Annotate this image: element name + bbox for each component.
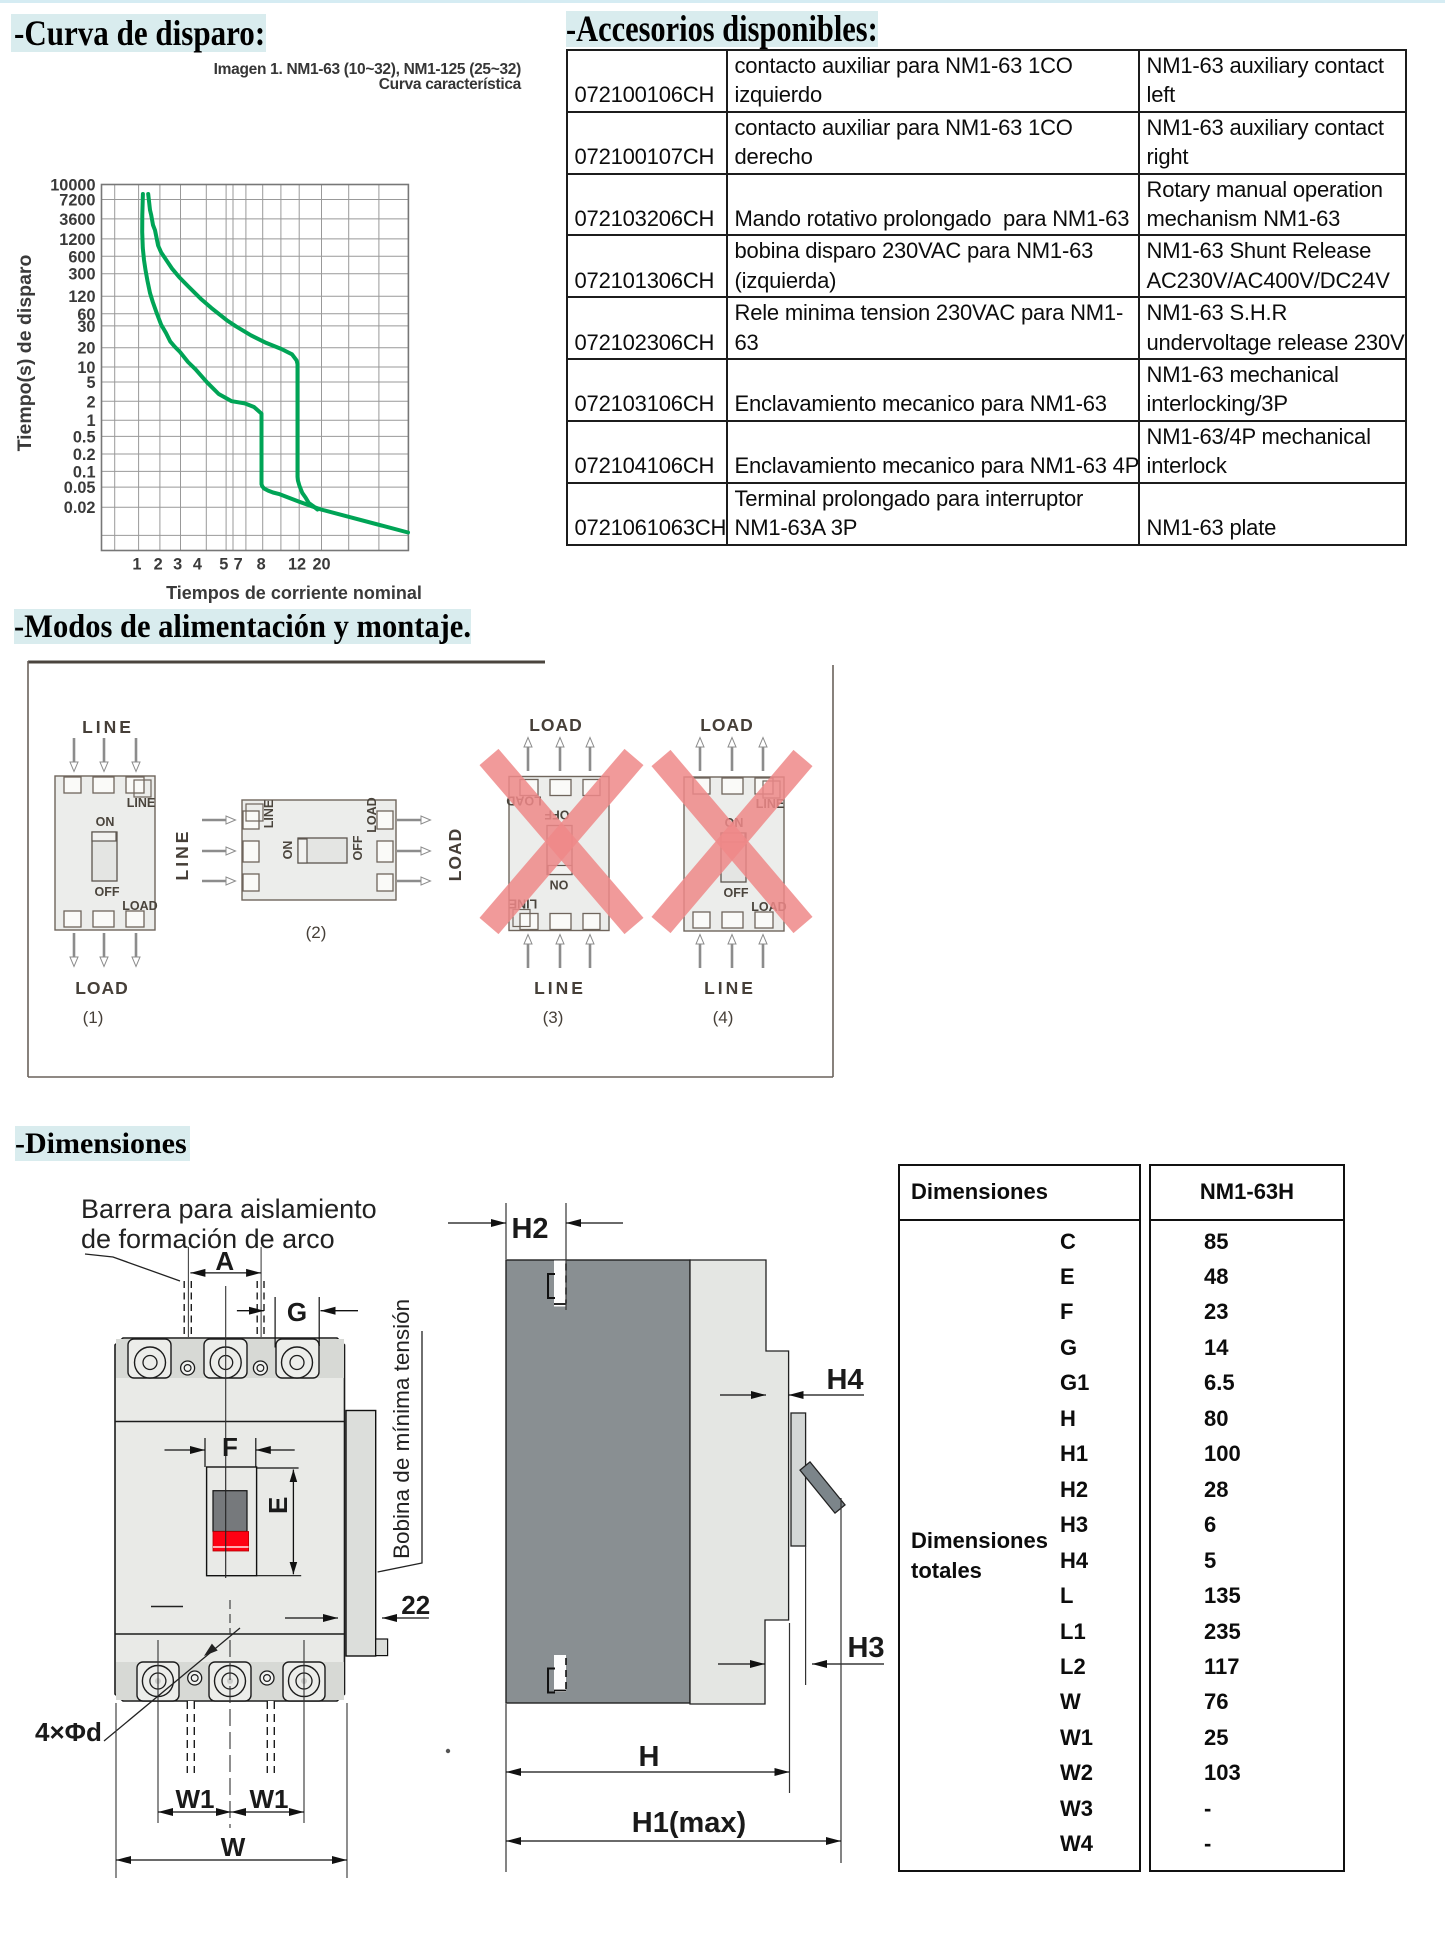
svg-text:20: 20 (77, 340, 95, 358)
svg-text:(4): (4) (713, 1008, 734, 1027)
svg-text:8: 8 (257, 556, 266, 574)
svg-text:30: 30 (77, 318, 95, 336)
svg-text:2: 2 (154, 556, 163, 574)
svg-text:LINE: LINE (82, 717, 134, 737)
svg-text:22: 22 (401, 1590, 430, 1620)
svg-text:12: 12 (288, 556, 306, 574)
svg-text:1: 1 (132, 556, 141, 574)
svg-text:5: 5 (86, 374, 95, 392)
svg-text:de formación de arco: de formación de arco (81, 1224, 335, 1254)
svg-text:0.05: 0.05 (64, 479, 96, 497)
svg-text:0.2: 0.2 (73, 446, 96, 464)
svg-text:120: 120 (68, 288, 95, 306)
svg-text:A: A (215, 1246, 234, 1276)
svg-text:E: E (263, 1497, 293, 1514)
svg-text:LOAD: LOAD (75, 978, 129, 998)
svg-text:W: W (221, 1832, 246, 1862)
svg-text:7200: 7200 (59, 192, 95, 210)
svg-text:(3): (3) (543, 1008, 564, 1027)
svg-text:5: 5 (219, 556, 228, 574)
svg-text:W1: W1 (176, 1784, 215, 1814)
svg-text:Tiempos de corriente nominal: Tiempos de corriente nominal (166, 583, 422, 603)
svg-text:Bobina de mínima tensión: Bobina de mínima tensión (389, 1299, 414, 1559)
svg-text:(2): (2) (306, 923, 327, 942)
svg-text:H1(max): H1(max) (632, 1807, 746, 1839)
svg-text:G: G (287, 1297, 307, 1327)
svg-text:300: 300 (68, 266, 95, 284)
svg-text:H4: H4 (826, 1364, 863, 1396)
svg-text:1200: 1200 (59, 231, 95, 249)
svg-text:LOAD: LOAD (445, 828, 465, 882)
svg-text:H3: H3 (847, 1632, 884, 1664)
svg-text:H2: H2 (511, 1213, 548, 1245)
svg-text:LOAD: LOAD (529, 715, 583, 735)
svg-text:0.5: 0.5 (73, 428, 96, 446)
svg-text:W1: W1 (250, 1784, 289, 1814)
svg-text:3: 3 (173, 556, 182, 574)
svg-text:3600: 3600 (59, 211, 95, 229)
svg-text:600: 600 (68, 248, 95, 266)
svg-text:LINE: LINE (172, 829, 192, 881)
svg-text:(1): (1) (83, 1008, 104, 1027)
svg-text:4×Φd: 4×Φd (35, 1717, 102, 1747)
svg-text:F: F (222, 1432, 238, 1462)
svg-text:4: 4 (193, 556, 202, 574)
svg-text:7: 7 (234, 556, 243, 574)
svg-text:Barrera para aislamiento: Barrera para aislamiento (81, 1194, 377, 1224)
svg-text:H: H (639, 1741, 660, 1773)
svg-text:LINE: LINE (534, 978, 586, 998)
svg-text:2: 2 (86, 393, 95, 411)
svg-text:20: 20 (312, 556, 330, 574)
svg-text:LINE: LINE (704, 978, 756, 998)
svg-text:0.02: 0.02 (64, 499, 96, 517)
svg-text:Tiempo(s) de disparo: Tiempo(s) de disparo (14, 254, 36, 451)
svg-text:LOAD: LOAD (700, 715, 754, 735)
